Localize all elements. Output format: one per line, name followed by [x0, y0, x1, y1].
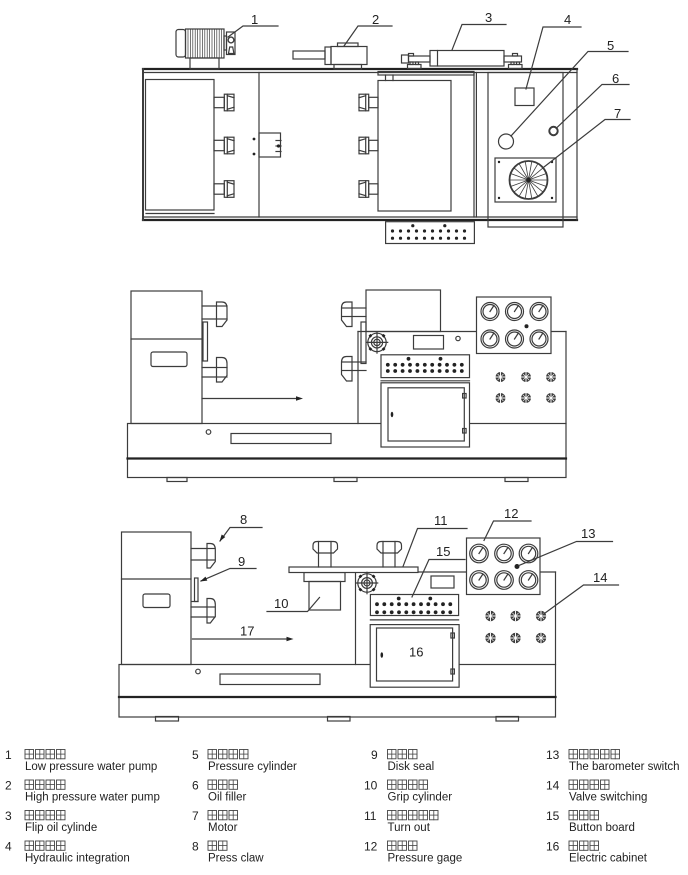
svg-text:4: 4: [564, 12, 571, 27]
svg-text:14: 14: [593, 570, 607, 585]
svg-text:Turn out: Turn out: [388, 822, 431, 834]
svg-text:12: 12: [364, 840, 378, 854]
svg-text:Disk seal: Disk seal: [388, 761, 435, 773]
svg-text:8: 8: [192, 840, 199, 854]
svg-text:Pressure cylinder: Pressure cylinder: [208, 761, 297, 773]
svg-text:Valve switching: Valve switching: [569, 792, 647, 804]
svg-text:13: 13: [581, 526, 595, 541]
svg-text:1: 1: [251, 12, 258, 27]
svg-text:Flip oil cylinde: Flip oil cylinde: [25, 822, 97, 834]
svg-text:10: 10: [364, 779, 378, 793]
svg-text:The barometer switch: The barometer switch: [569, 761, 680, 773]
svg-text:7: 7: [614, 106, 621, 121]
svg-text:2: 2: [5, 779, 12, 793]
svg-text:11: 11: [364, 809, 377, 823]
svg-text:High pressure water pump: High pressure water pump: [25, 792, 160, 804]
svg-text:17: 17: [240, 624, 254, 639]
svg-text:15: 15: [436, 544, 450, 559]
svg-text:11: 11: [434, 513, 448, 528]
svg-text:8: 8: [240, 512, 247, 527]
svg-text:1: 1: [5, 748, 12, 762]
svg-text:Press claw: Press claw: [208, 853, 264, 865]
svg-text:9: 9: [238, 554, 245, 569]
svg-text:3: 3: [485, 10, 492, 25]
svg-text:15: 15: [546, 809, 560, 823]
svg-text:Low pressure water pump: Low pressure water pump: [25, 761, 157, 773]
svg-text:5: 5: [192, 748, 199, 762]
svg-text:Electric cabinet: Electric cabinet: [569, 853, 648, 865]
svg-text:Pressure gage: Pressure gage: [388, 853, 463, 865]
svg-text:Button board: Button board: [569, 822, 635, 834]
svg-text:10: 10: [274, 596, 288, 611]
svg-text:2: 2: [372, 12, 379, 27]
svg-text:9: 9: [371, 748, 378, 762]
svg-text:13: 13: [546, 748, 560, 762]
svg-text:14: 14: [546, 779, 560, 793]
svg-text:7: 7: [192, 809, 199, 823]
svg-text:Motor: Motor: [208, 822, 238, 834]
svg-text:6: 6: [192, 779, 199, 793]
svg-text:5: 5: [607, 38, 614, 53]
svg-text:16: 16: [546, 840, 560, 854]
svg-text:16: 16: [409, 645, 423, 660]
svg-text:Oil filler: Oil filler: [208, 792, 247, 804]
svg-text:4: 4: [5, 840, 12, 854]
svg-text:12: 12: [504, 506, 518, 521]
svg-text:Hydraulic integration: Hydraulic integration: [25, 853, 130, 865]
svg-text:Grip cylinder: Grip cylinder: [388, 792, 453, 804]
svg-text:6: 6: [612, 71, 619, 86]
svg-text:3: 3: [5, 809, 12, 823]
